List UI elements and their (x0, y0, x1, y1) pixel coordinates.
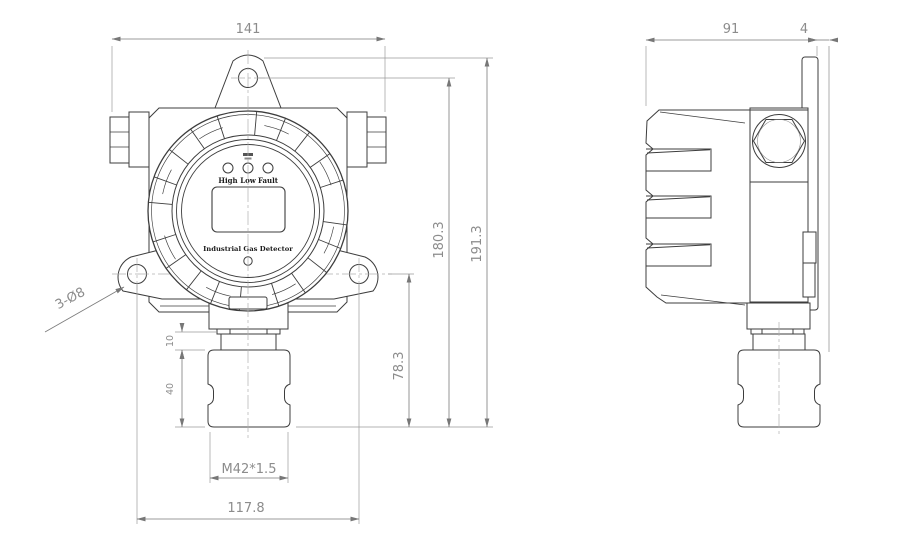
led-low-label: Low (240, 176, 257, 185)
dim-thread: M42*1.5 (210, 432, 288, 483)
dim-depth: 91 (646, 22, 817, 106)
cable-gland-left (110, 112, 149, 167)
dim-mounting-holes: 3-Ø8 (45, 285, 124, 332)
sensor-neck (221, 334, 276, 350)
svg-text:40: 40 (165, 383, 176, 395)
led-high-label: High (218, 176, 237, 185)
svg-text:10: 10 (165, 335, 176, 347)
side-view (646, 46, 829, 436)
sensor-head (208, 350, 290, 427)
svg-text:78.3: 78.3 (392, 352, 407, 381)
svg-text:91: 91 (723, 22, 740, 37)
side-ribbed-cover (646, 110, 750, 305)
sensor-assembly (208, 329, 290, 427)
led-fault-label: Fault (258, 176, 279, 185)
gas-detector-drawing: High Low Fault Industrial Gas Detector (0, 0, 903, 540)
dim-sensor-height: 40 (165, 350, 205, 427)
cable-entry-hex (750, 110, 808, 182)
dim-plate-thickness: 4 (800, 22, 838, 40)
front-view: High Low Fault Industrial Gas Detector (110, 50, 392, 438)
rear-bracket-lower (803, 263, 815, 297)
svg-text:117.8: 117.8 (227, 501, 264, 516)
svg-text:3-Ø8: 3-Ø8 (53, 285, 88, 313)
svg-text:M42*1.5: M42*1.5 (222, 462, 277, 477)
svg-text:141: 141 (236, 22, 261, 37)
rear-bracket-upper (803, 232, 816, 263)
svg-text:180.3: 180.3 (432, 221, 447, 258)
cable-gland-right (347, 112, 386, 167)
svg-text:4: 4 (800, 22, 808, 37)
drawing-sheet: High Low Fault Industrial Gas Detector (0, 0, 903, 540)
lcd-screen (212, 187, 285, 232)
svg-text:191.3: 191.3 (470, 225, 485, 262)
